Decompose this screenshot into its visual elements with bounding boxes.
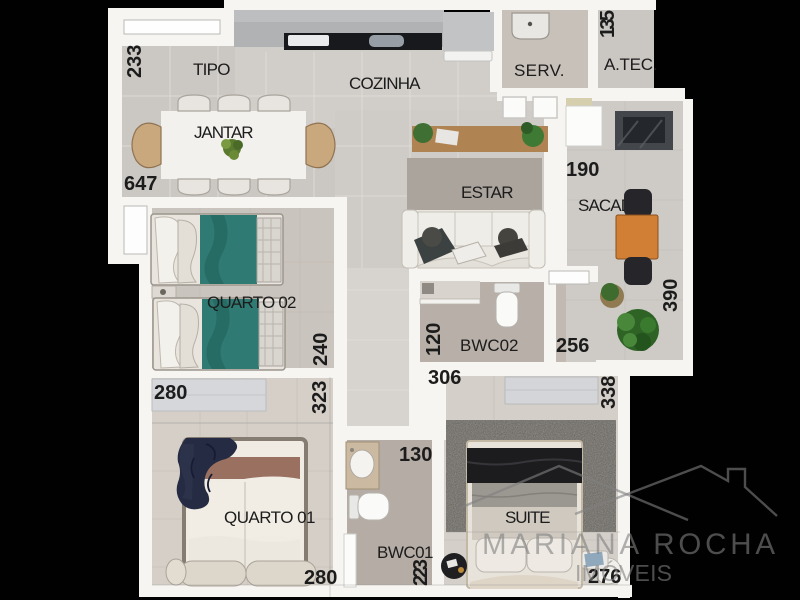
svg-text:SUITE: SUITE [505,508,551,527]
svg-text:ESTAR: ESTAR [461,183,514,202]
svg-text:COZINHA: COZINHA [349,74,421,93]
svg-text:SERV.: SERV. [514,61,565,80]
svg-text:390: 390 [660,279,682,312]
svg-text:256: 256 [556,335,589,357]
svg-text:190: 190 [566,159,599,181]
svg-text:QUARTO 02: QUARTO 02 [207,293,297,312]
svg-text:MARIANA ROCHA: MARIANA ROCHA [482,528,775,561]
svg-text:BWC02: BWC02 [460,336,519,355]
svg-text:A.TEC.: A.TEC. [604,55,658,74]
svg-text:306: 306 [428,367,461,389]
svg-text:233: 233 [124,45,146,78]
svg-text:135: 135 [597,10,619,38]
svg-text:280: 280 [154,382,187,404]
svg-text:130: 130 [399,444,432,466]
svg-text:323: 323 [309,381,331,414]
svg-text:240: 240 [310,333,332,366]
svg-text:120: 120 [423,323,445,356]
svg-text:TIPO: TIPO [193,60,231,79]
svg-text:647: 647 [124,173,157,195]
svg-text:QUARTO 01: QUARTO 01 [224,508,316,527]
svg-text:JANTAR: JANTAR [194,123,254,142]
svg-text:IMÓVEIS: IMÓVEIS [575,560,672,586]
svg-text:338: 338 [598,376,620,409]
svg-text:223: 223 [410,559,432,586]
svg-text:280: 280 [304,567,337,589]
